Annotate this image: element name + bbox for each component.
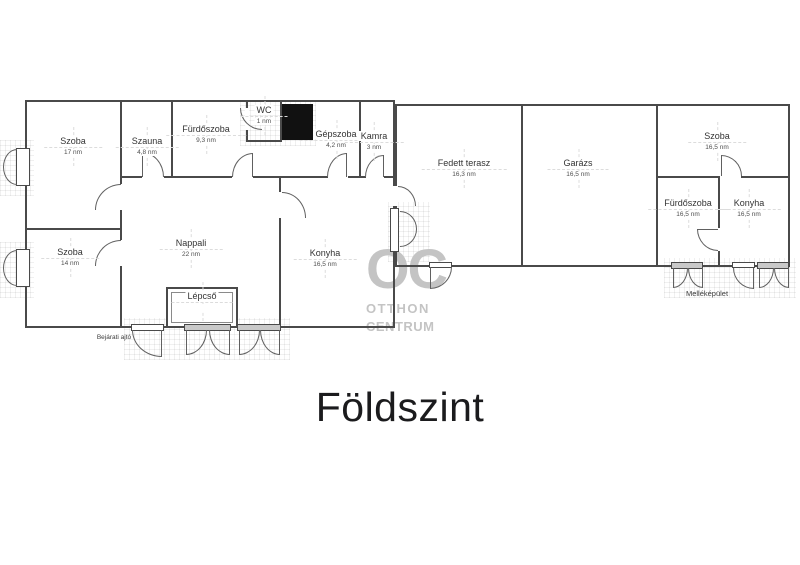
room-label-szoba-17: Szoba 17 nm bbox=[58, 136, 88, 157]
window-frame bbox=[16, 249, 30, 287]
room-label-furdoszoba-mellekepulet: Fürdőszoba 16,5 nm bbox=[662, 198, 714, 219]
chimney-block bbox=[282, 104, 313, 140]
wall bbox=[656, 104, 658, 267]
room-area: 14 nm bbox=[55, 260, 85, 267]
room-name: Szoba bbox=[55, 247, 85, 257]
entrance-door-label: Bejárati ajtó bbox=[97, 334, 131, 341]
room-label-fedett-terasz: Fedett terasz 16,3 nm bbox=[436, 158, 493, 179]
room-name: Lépcső bbox=[185, 291, 218, 301]
room-name: Garázs bbox=[561, 158, 594, 168]
room-label-szauna: Szauna 4,8 nm bbox=[130, 136, 165, 157]
room-area: 4,8 nm bbox=[130, 149, 165, 156]
room-area bbox=[185, 304, 218, 311]
room-name: Konyha bbox=[308, 248, 343, 258]
wall bbox=[171, 100, 173, 178]
room-area: 3 nm bbox=[359, 144, 390, 151]
room-name: Fürdőszoba bbox=[662, 198, 714, 208]
page-title: Földszint bbox=[0, 384, 800, 431]
wall bbox=[521, 104, 523, 267]
wall bbox=[246, 140, 282, 142]
room-label-nappali: Nappali 22 nm bbox=[174, 238, 209, 259]
door-swing bbox=[430, 267, 452, 289]
room-area: 22 nm bbox=[174, 251, 209, 258]
room-name: Kamra bbox=[359, 131, 390, 141]
room-name: Nappali bbox=[174, 238, 209, 248]
terrace-door-frame bbox=[390, 208, 399, 252]
room-name: Szauna bbox=[130, 136, 165, 146]
room-label-lepcso: Lépcső bbox=[185, 291, 218, 312]
room-name: Konyha bbox=[732, 198, 767, 208]
room-label-szoba-14: Szoba 14 nm bbox=[55, 247, 85, 268]
room-label-kamra: Kamra 3 nm bbox=[359, 131, 390, 152]
room-area: 16,5 nm bbox=[308, 261, 343, 268]
floor-plan: OC OTTHON CENTRUM bbox=[0, 0, 800, 565]
room-label-garazs: Garázs 16,5 nm bbox=[561, 158, 594, 179]
wall bbox=[718, 176, 720, 267]
room-label-konyha: Konyha 16,5 nm bbox=[308, 248, 343, 269]
room-area: 4,2 nm bbox=[313, 142, 358, 149]
room-name: Gépszoba bbox=[313, 129, 358, 139]
room-name: Fürdőszoba bbox=[180, 124, 232, 134]
room-area: 17 nm bbox=[58, 149, 88, 156]
right-wing-outline bbox=[395, 104, 790, 267]
room-name: Szoba bbox=[58, 136, 88, 146]
room-area: 16,5 nm bbox=[662, 211, 714, 218]
room-area: 1 nm bbox=[255, 118, 274, 125]
room-label-konyha-mellekepulet: Konyha 16,5 nm bbox=[732, 198, 767, 219]
room-area: 16,5 nm bbox=[732, 211, 767, 218]
room-name: WC bbox=[255, 105, 274, 115]
room-area: 16,5 nm bbox=[702, 144, 732, 151]
room-name: Szoba bbox=[702, 131, 732, 141]
room-label-furdoszoba: Fürdőszoba 9,3 nm bbox=[180, 124, 232, 145]
room-label-wc: WC 1 nm bbox=[255, 105, 274, 126]
room-area: 16,3 nm bbox=[436, 171, 493, 178]
room-area: 16,5 nm bbox=[561, 171, 594, 178]
outbuilding-label: Melléképület bbox=[686, 289, 728, 298]
wall bbox=[120, 100, 122, 328]
wall bbox=[25, 228, 122, 230]
room-area: 9,3 nm bbox=[180, 137, 232, 144]
window-frame bbox=[16, 148, 30, 186]
room-name: Fedett terasz bbox=[436, 158, 493, 168]
room-label-gepszoba: Gépszoba 4,2 nm bbox=[313, 129, 358, 150]
room-label-szoba-mellekepulet: Szoba 16,5 nm bbox=[702, 131, 732, 152]
